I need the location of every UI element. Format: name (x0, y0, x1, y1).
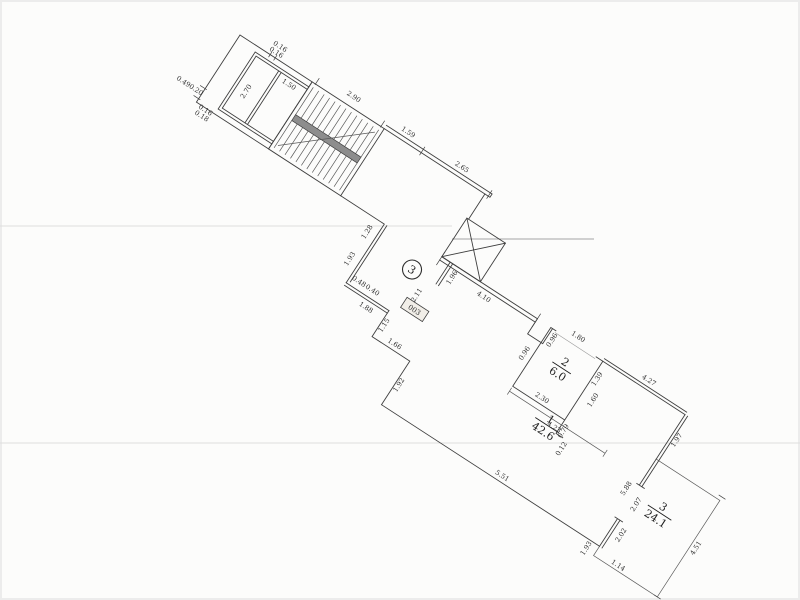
dim-label-197: 1.97 (669, 432, 684, 449)
dim-label-wall-159: 1.59 (400, 125, 417, 140)
scan-page-edge (1, 1, 799, 599)
dim-label-020: 0.20 (187, 82, 204, 97)
dim-label-192: 1.92 (392, 377, 407, 394)
dim-label-139: 1.39 (590, 371, 605, 388)
dim-label-180: 1.80 (570, 329, 587, 344)
dim-label-160: 1.60 (586, 392, 601, 409)
staircase (269, 76, 389, 196)
dim-label-193b: 1.93 (579, 540, 594, 557)
dim-label-202: 2.02 (614, 527, 629, 544)
floor-plan-drawing: 2.90 1.59 2.65 1.50 0.16 0.16 0.49 0.20 … (0, 0, 800, 600)
dim-label-114: 1.14 (610, 558, 627, 573)
dim-label-cell-height: 2.70 (239, 83, 254, 100)
top-boundary-wall (383, 123, 494, 200)
stairwell-number-badge: 3 (399, 256, 425, 282)
stair-direction-line (278, 92, 375, 186)
room-3-label: 3 24.1 (640, 494, 678, 532)
dim-label-230: 2.30 (533, 391, 550, 406)
dim-label-115: 1.15 (377, 317, 392, 334)
dim-label-410: 4.10 (475, 289, 492, 304)
dim-label-451: 4.51 (689, 540, 704, 557)
landing-walls (303, 196, 387, 285)
scanned-floor-plan-page: 2.90 1.59 2.65 1.50 0.16 0.16 0.49 0.20 … (0, 0, 800, 600)
dim-label-cell-width: 1.50 (280, 77, 297, 92)
room-2-label: 2 6.0 (545, 351, 578, 386)
dim-label-wall-265: 2.65 (453, 160, 470, 175)
dim-label-207: 2.07 (629, 496, 644, 513)
dim-label-188: 1.88 (357, 300, 374, 315)
dim-label-551: 5.51 (494, 468, 511, 483)
dim-label-166: 1.66 (386, 337, 403, 352)
dim-label-427: 4.27 (640, 373, 657, 388)
dim-label-193a: 1.93 (342, 250, 357, 267)
dim-label-588: 5.88 (619, 480, 634, 497)
dim-label-stairs-width: 2.90 (345, 89, 362, 104)
shaft-x-symbol (428, 193, 522, 304)
